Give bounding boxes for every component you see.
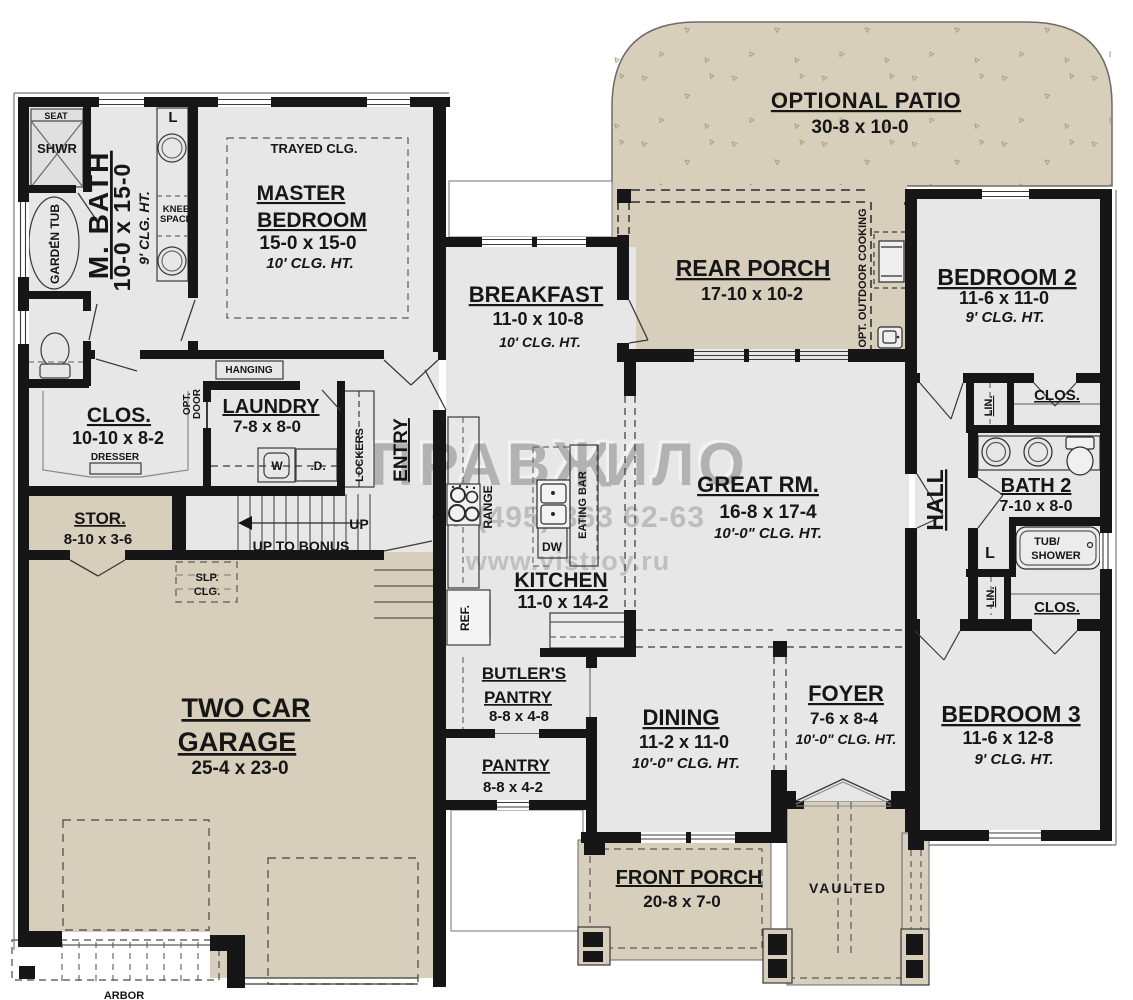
svg-text:CLOS.: CLOS. <box>1034 599 1080 616</box>
svg-text:BEDROOM 2: BEDROOM 2 <box>937 264 1076 290</box>
svg-text:W: W <box>271 459 283 473</box>
svg-text:SHOWER: SHOWER <box>1031 550 1081 562</box>
svg-text:DRESSER: DRESSER <box>91 452 140 463</box>
svg-text:STOR.: STOR. <box>74 509 126 528</box>
svg-text:DINING: DINING <box>643 705 720 730</box>
svg-text:10'-0" CLG. HT.: 10'-0" CLG. HT. <box>796 731 897 747</box>
svg-text:10'-0" CLG. HT.: 10'-0" CLG. HT. <box>714 525 822 542</box>
svg-text:HANGING: HANGING <box>225 365 272 376</box>
svg-text:CLOS.: CLOS. <box>87 404 151 427</box>
svg-text:GARDEN TUB: GARDEN TUB <box>48 204 62 284</box>
svg-text:ARBOR: ARBOR <box>104 990 144 1000</box>
svg-text:HALL: HALL <box>922 469 948 530</box>
svg-text:10-0 x 15-0: 10-0 x 15-0 <box>109 163 135 292</box>
svg-text:7-10 x 8-0: 7-10 x 8-0 <box>1000 498 1073 515</box>
svg-text:SPACE: SPACE <box>160 214 192 225</box>
svg-text:EATING BAR: EATING BAR <box>577 471 589 539</box>
svg-text:VAULTED: VAULTED <box>809 880 887 896</box>
svg-text:BATH 2: BATH 2 <box>1001 475 1072 497</box>
svg-text:20-8 x 7-0: 20-8 x 7-0 <box>643 892 721 911</box>
svg-text:TRAYED CLG.: TRAYED CLG. <box>271 141 358 156</box>
svg-text:DW: DW <box>542 540 563 554</box>
svg-text:SLP.: SLP. <box>195 572 218 584</box>
svg-text:11-2 x 11-0: 11-2 x 11-0 <box>639 732 729 752</box>
svg-text:17-10 x 10-2: 17-10 x 10-2 <box>701 284 803 304</box>
svg-text:OPT. OUTDOOR COOKING: OPT. OUTDOOR COOKING <box>857 208 869 347</box>
svg-text:REF.: REF. <box>458 605 472 631</box>
svg-text:30-8 x 10-0: 30-8 x 10-0 <box>811 117 908 138</box>
svg-text:11-0 x 10-8: 11-0 x 10-8 <box>492 309 583 329</box>
svg-text:BUTLER'S: BUTLER'S <box>482 664 566 683</box>
svg-text:MASTER: MASTER <box>257 182 346 205</box>
svg-text:OPTIONAL PATIO: OPTIONAL PATIO <box>771 88 961 113</box>
svg-text:FRONT PORCH: FRONT PORCH <box>616 867 763 889</box>
svg-text:10'-0" CLG. HT.: 10'-0" CLG. HT. <box>632 755 740 772</box>
svg-text:7-6 x 8-4: 7-6 x 8-4 <box>810 709 879 728</box>
svg-text:UP TO BONUS: UP TO BONUS <box>253 538 350 554</box>
svg-text:FOYER: FOYER <box>808 681 884 706</box>
svg-text:9' CLG. HT.: 9' CLG. HT. <box>136 191 152 265</box>
svg-text:8-10 x 3-6: 8-10 x 3-6 <box>64 531 132 548</box>
svg-text:LIN.: LIN. <box>983 396 995 417</box>
svg-text:TWO CAR: TWO CAR <box>182 693 311 723</box>
svg-text:KITCHEN: KITCHEN <box>514 569 607 592</box>
svg-text:10-10 x 8-2: 10-10 x 8-2 <box>72 428 164 448</box>
svg-text:11-6 x 11-0: 11-6 x 11-0 <box>959 288 1049 308</box>
svg-text:9' CLG. HT.: 9' CLG. HT. <box>974 751 1053 768</box>
svg-text:DOOR: DOOR <box>192 388 203 419</box>
svg-text:7-8 x 8-0: 7-8 x 8-0 <box>233 417 301 436</box>
svg-text:8-8 x 4-8: 8-8 x 4-8 <box>489 708 549 725</box>
svg-text:GREAT RM.: GREAT RM. <box>697 472 819 497</box>
svg-text:16-8 x 17-4: 16-8 x 17-4 <box>719 502 817 523</box>
svg-text:.D.: .D. <box>310 459 325 473</box>
svg-text:10' CLG. HT.: 10' CLG. HT. <box>266 255 353 272</box>
svg-text:BEDROOM: BEDROOM <box>257 209 367 232</box>
svg-text:11-6 x 12-8: 11-6 x 12-8 <box>962 728 1053 748</box>
svg-text:LAUNDRY: LAUNDRY <box>222 396 320 418</box>
svg-text:L: L <box>985 545 995 562</box>
svg-text:REAR PORCH: REAR PORCH <box>676 255 831 281</box>
svg-text:SEAT: SEAT <box>44 111 68 121</box>
svg-text:RANGE: RANGE <box>481 485 495 528</box>
svg-text:8-8 x 4-2: 8-8 x 4-2 <box>483 779 543 796</box>
svg-text:BREAKFAST: BREAKFAST <box>469 282 604 307</box>
svg-text:GARAGE: GARAGE <box>178 727 297 757</box>
svg-text:CLG.: CLG. <box>194 586 220 598</box>
svg-text:L: L <box>168 109 177 126</box>
svg-text:SHWR: SHWR <box>37 141 77 156</box>
svg-text:UP: UP <box>349 516 368 532</box>
svg-text:9' CLG. HT.: 9' CLG. HT. <box>965 309 1044 326</box>
svg-text:10' CLG. HT.: 10' CLG. HT. <box>499 334 581 350</box>
svg-text:ENTRY: ENTRY <box>391 418 412 482</box>
svg-text:15-0 x 15-0: 15-0 x 15-0 <box>259 233 356 254</box>
svg-text:BEDROOM 3: BEDROOM 3 <box>941 701 1080 727</box>
svg-text:CLOS.: CLOS. <box>1034 387 1080 404</box>
svg-text:25-4 x 23-0: 25-4 x 23-0 <box>191 758 288 779</box>
svg-text:LOCKERS: LOCKERS <box>354 428 366 482</box>
svg-text:TUB/: TUB/ <box>1034 536 1060 548</box>
svg-text:PANTRY: PANTRY <box>484 688 553 707</box>
svg-text:PANTRY: PANTRY <box>482 756 551 775</box>
svg-text:LIN.: LIN. <box>985 587 997 608</box>
svg-text:11-0 x 14-2: 11-0 x 14-2 <box>517 592 608 612</box>
